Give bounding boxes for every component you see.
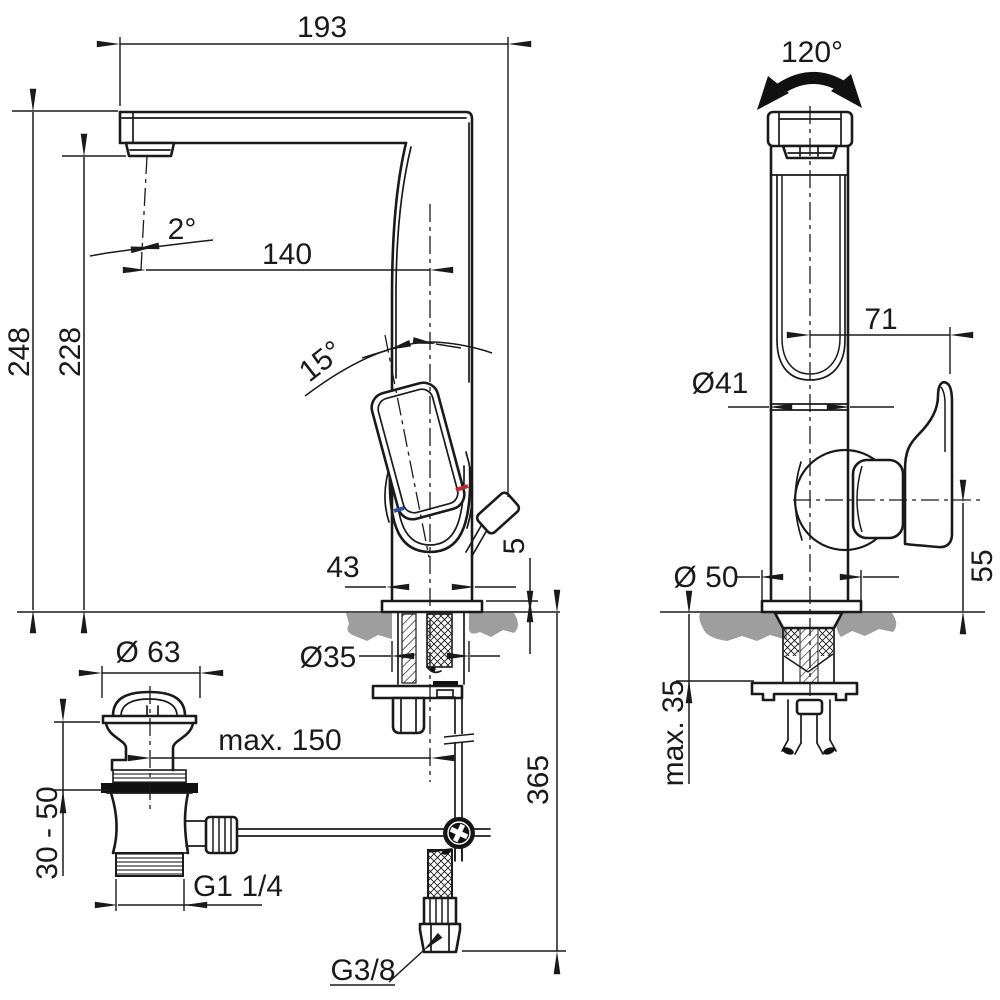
- dim-height: 248: [3, 327, 36, 377]
- dim-handle-angle: 15°: [293, 335, 349, 389]
- technical-drawing-page: 193 248 228 2° 140 15° 43 5 Ø35 Ø 63 max…: [0, 0, 1000, 1000]
- dim-swivel: 120°: [781, 36, 843, 69]
- dim-drain-cap-dia: Ø 63: [115, 636, 180, 669]
- dim-hose-thread: G3/8: [330, 954, 395, 987]
- dim-body-dia: Ø41: [692, 367, 749, 400]
- dim-reach-to-axis: 140: [262, 238, 312, 271]
- dim-outlet-height: 228: [54, 327, 87, 377]
- dim-drain-thread: G1 1/4: [193, 870, 283, 903]
- dim-body-width: 43: [326, 551, 359, 584]
- faucet-dimension-drawing: 193 248 228 2° 140 15° 43 5 Ø35 Ø 63 max…: [0, 0, 1000, 1000]
- front-view-fixture: [757, 74, 952, 612]
- dim-handle-height: 55: [966, 549, 999, 582]
- centerlines: [141, 106, 983, 810]
- drain-popup-waste: [101, 692, 237, 876]
- dim-outlet-angle: 2°: [168, 213, 197, 246]
- dim-hole-dia: Ø35: [300, 641, 357, 674]
- dim-hose-drop: 365: [522, 755, 555, 805]
- dim-handle-offset: 71: [864, 303, 897, 336]
- dim-overall-reach: 193: [297, 11, 347, 44]
- dim-rod-travel: max. 150: [218, 724, 341, 757]
- dim-deck-max: max. 35: [657, 680, 690, 787]
- swivel-arrow: [780, 78, 843, 89]
- dim-adjust-range: 30 - 50: [31, 786, 64, 879]
- dim-base-dia: Ø 50: [673, 561, 738, 594]
- dim-base-height: 5: [498, 538, 531, 555]
